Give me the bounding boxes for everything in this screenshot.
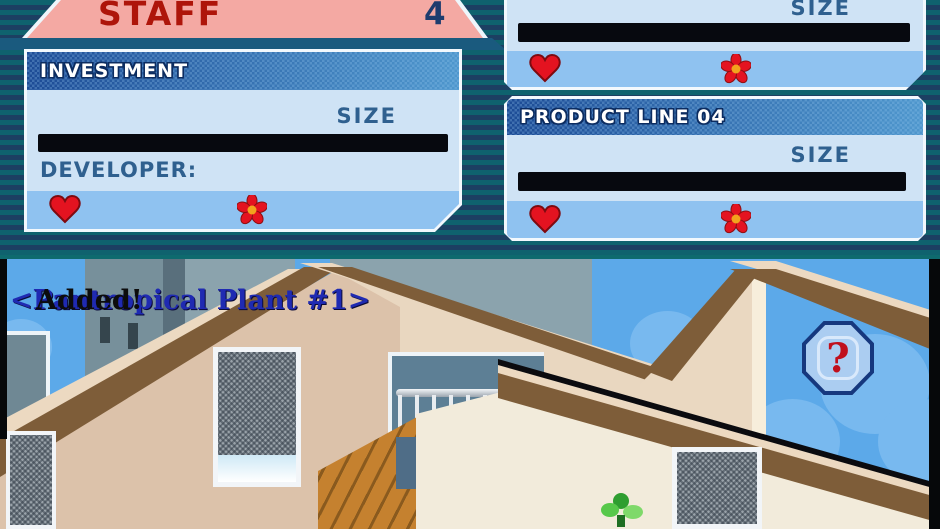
investment-panel-footer [27,191,459,229]
investment-panel-body: SIZE DEVELOPER: [27,90,459,191]
window-blinds [6,431,56,529]
window-blinds [672,447,762,529]
heart-icon [49,194,81,224]
staff-banner [22,0,488,38]
building-window-slit [100,317,110,343]
investment-panel-header: INVESTMENT [27,52,459,90]
product-line-03-size-bar [518,23,910,42]
flower-icon [721,204,751,234]
status-text: Added! [36,285,143,316]
staff-banner-shadow-bar [0,38,506,50]
investment-size-bar [38,134,448,152]
flower-icon [721,54,751,84]
product-line-04-footer [507,201,923,238]
product-line-04-panel-inner: PRODUCT LINE 04 SIZE [507,99,923,238]
product-line-04-header: PRODUCT LINE 04 [507,99,923,135]
investment-developer-label: DEVELOPER: [40,158,197,182]
window-sill [218,455,296,482]
staff-count: 4 [424,0,446,32]
product-line-04-panel: PRODUCT LINE 04 SIZE [504,96,926,241]
staff-banner-background [22,0,488,38]
product-line-03-panel-inner: SIZE [507,0,923,87]
product-line-03-body: SIZE [507,0,923,51]
flower-icon [237,195,267,225]
help-button-face: ? [806,325,870,391]
question-icon: ? [817,336,859,380]
building-window-slit [128,323,138,349]
heart-icon [529,53,561,83]
product-line-04-size-bar [518,172,906,191]
isometric-house-scene: <Pantropical Plant #1>Added! ? [0,259,940,529]
product-line-04-body: SIZE [507,135,923,201]
product-line-03-footer [507,51,923,87]
product-line-03-panel: SIZE [504,0,926,90]
product-line-04-size-label: SIZE [790,143,851,167]
top-screen: STAFF 4 INVESTMENT SIZE DEVELOPER: [0,0,940,255]
ds-dual-screen: STAFF 4 INVESTMENT SIZE DEVELOPER: [0,0,940,529]
screen-edge-strip [929,259,940,529]
product-line-03-size-label: SIZE [790,0,851,20]
screen-edge-strip [0,259,7,439]
plant-sprite [595,491,647,529]
investment-panel: INVESTMENT SIZE DEVELOPER: [24,49,462,232]
staff-label: STAFF [98,0,222,33]
heart-icon [529,204,561,234]
investment-panel-inner: INVESTMENT SIZE DEVELOPER: [27,52,459,229]
bottom-screen: <Pantropical Plant #1>Added! ? [0,255,940,529]
investment-size-label: SIZE [336,104,397,128]
